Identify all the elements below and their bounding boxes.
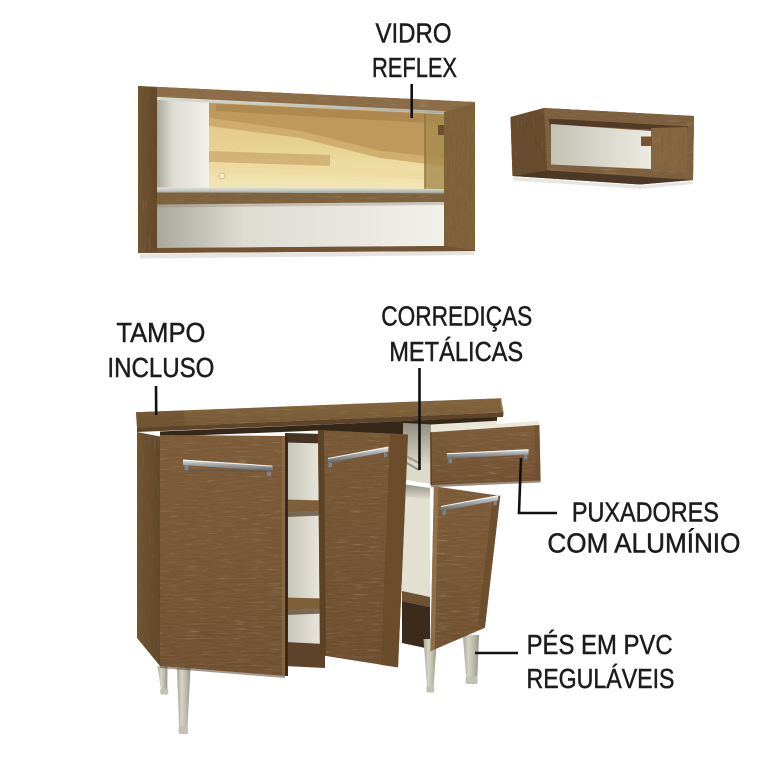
svg-text:TAMPO: TAMPO <box>116 317 205 348</box>
svg-text:REGULÁVEIS: REGULÁVEIS <box>527 663 675 694</box>
svg-text:METÁLICAS: METÁLICAS <box>389 336 523 367</box>
svg-text:VIDRO: VIDRO <box>376 18 452 49</box>
svg-text:PÉS EM PVC: PÉS EM PVC <box>527 629 673 660</box>
svg-text:PUXADORES: PUXADORES <box>572 497 719 528</box>
svg-text:COM ALUMÍNIO: COM ALUMÍNIO <box>547 528 740 559</box>
svg-text:CORREDIÇAS: CORREDIÇAS <box>381 301 532 332</box>
svg-text:INCLUSO: INCLUSO <box>107 352 214 383</box>
svg-text:REFLEX: REFLEX <box>372 52 457 83</box>
